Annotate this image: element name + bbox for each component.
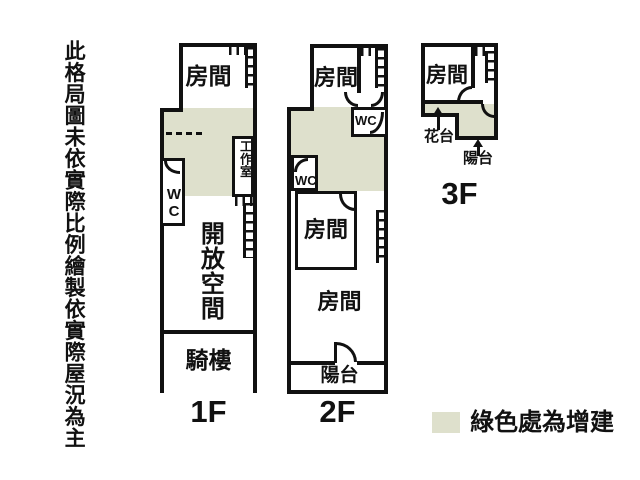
disclaimer-text: 此格局圖未依實際比例繪製依實際屋況為主 bbox=[62, 40, 85, 452]
flower-bed-label-3f: 花台 bbox=[424, 129, 454, 146]
wc-label-2f-lower: WC bbox=[295, 174, 317, 188]
legend-color-swatch bbox=[432, 412, 460, 433]
stairs-comb-icon bbox=[229, 47, 245, 55]
stairs-ladder-icon bbox=[375, 48, 388, 88]
stairs-ladder-icon bbox=[376, 210, 388, 263]
room-label-3f: 房間 bbox=[421, 64, 473, 87]
studio-label: 工作室 bbox=[237, 140, 251, 178]
open-space-label: 開放空間 bbox=[196, 221, 222, 321]
floor-label-1f: 1F bbox=[160, 395, 257, 429]
stairs-ladder-icon bbox=[243, 203, 257, 258]
wc-label-1f: WC bbox=[165, 186, 182, 220]
arcade-label: 騎樓 bbox=[160, 348, 257, 373]
floor-label-2f: 2F bbox=[287, 395, 388, 429]
room-label-2f-top: 房間 bbox=[308, 66, 364, 90]
door-swing-icon bbox=[336, 342, 357, 362]
door-swing-icon bbox=[344, 92, 358, 107]
floor-label-3f: 3F bbox=[421, 177, 498, 211]
door-swing-icon bbox=[457, 86, 472, 102]
balcony-label-3f: 陽台 bbox=[463, 151, 493, 168]
room-label-2f-bottom: 房間 bbox=[291, 290, 388, 314]
balcony-label-2f: 陽台 bbox=[291, 366, 388, 387]
wall bbox=[160, 330, 257, 334]
dashed-line bbox=[166, 132, 202, 135]
wall bbox=[357, 361, 388, 365]
stairs-ladder-icon bbox=[485, 51, 498, 83]
legend-text: 綠色處為增建 bbox=[470, 410, 614, 436]
wall bbox=[287, 107, 291, 394]
room-label-2f-mid: 房間 bbox=[295, 218, 357, 242]
wall bbox=[421, 100, 483, 104]
floor-plan-diagram: 此格局圖未依實際比例繪製依實際屋況為主 工作室 WC 房間 開放空間 騎樓 1F bbox=[0, 0, 640, 480]
door-swing-icon bbox=[371, 92, 384, 107]
wall bbox=[287, 107, 314, 111]
room-label-1f: 房間 bbox=[160, 64, 257, 89]
